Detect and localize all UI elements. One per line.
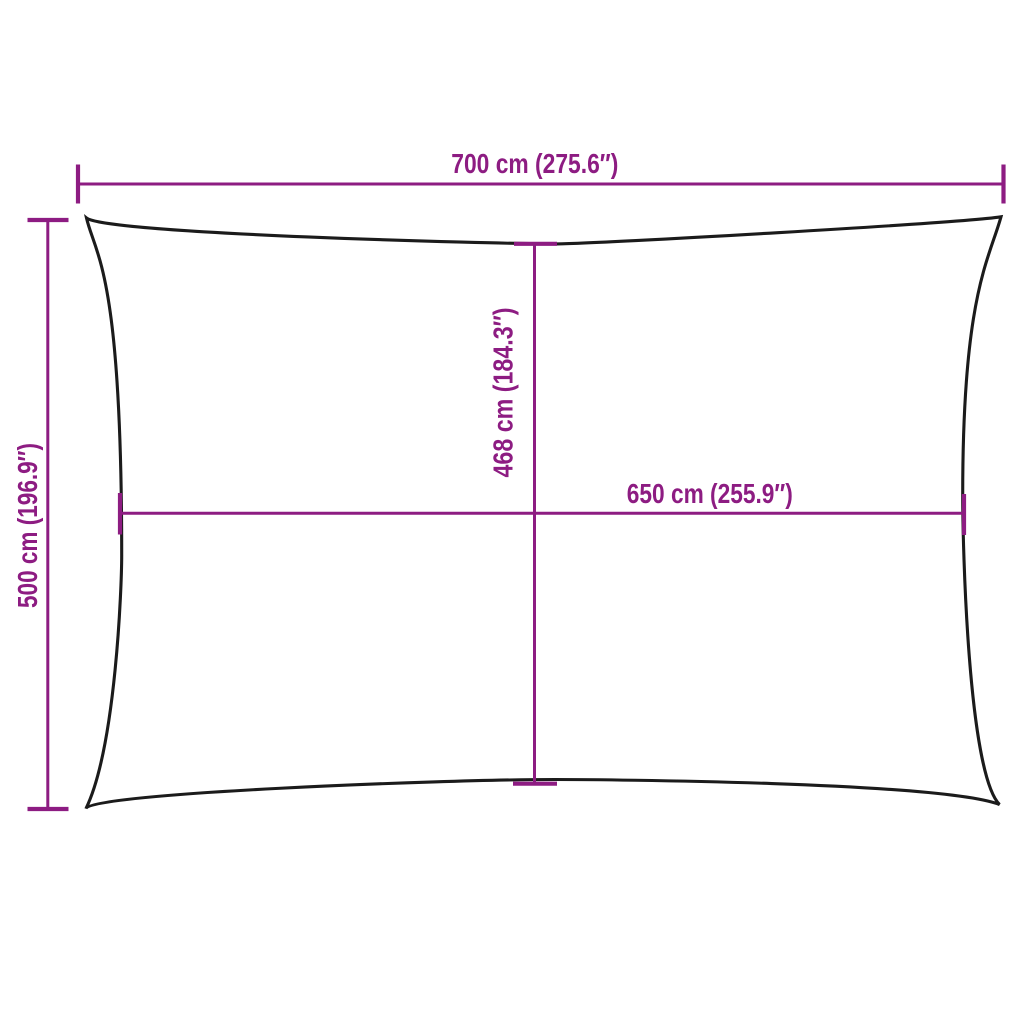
svg-text:700 cm (275.6″): 700 cm (275.6″) <box>451 147 618 179</box>
svg-text:468 cm (184.3″): 468 cm (184.3″) <box>487 308 519 478</box>
svg-text:500 cm (196.9″): 500 cm (196.9″) <box>11 443 43 608</box>
svg-text:650 cm (255.9″): 650 cm (255.9″) <box>627 477 793 509</box>
